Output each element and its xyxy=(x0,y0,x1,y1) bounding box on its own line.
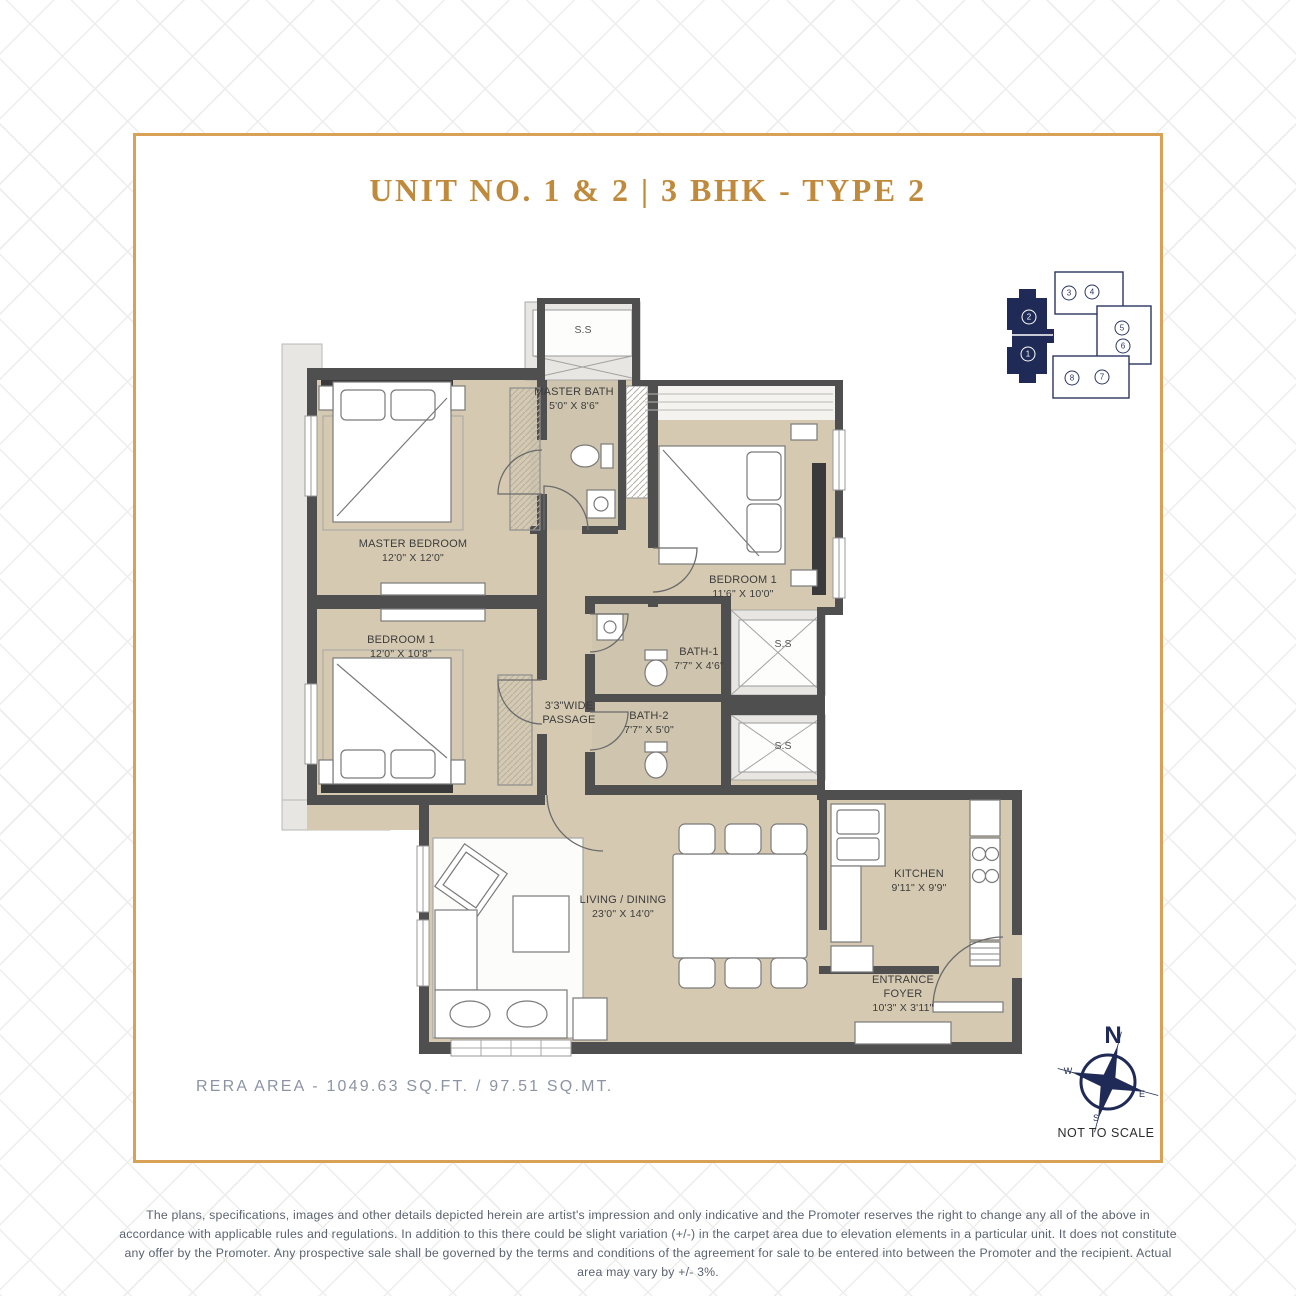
shaft-label-top: S.S xyxy=(575,324,592,336)
key-plan-unit-3: 3 xyxy=(1062,286,1077,301)
room-label-living-dining: LIVING / DINING 23'0" X 14'0" xyxy=(580,894,667,921)
compass-east-label: E xyxy=(1139,1089,1145,1099)
room-label-entrance-foyer: ENTRANCE FOYER 10'3" X 3'11" xyxy=(857,974,949,1015)
room-label-kitchen: KITCHEN 9'11" X 9'9" xyxy=(891,868,946,895)
compass-north-label: N xyxy=(1104,1022,1121,1050)
rera-area-note: RERA AREA - 1049.63 SQ.FT. / 97.51 SQ.MT… xyxy=(196,1078,613,1096)
compass-west-label: W xyxy=(1064,1066,1073,1076)
key-plan: 2 1 3 4 5 6 8 7 xyxy=(995,258,1165,408)
room-label-bath1: BATH-1 7'7" X 4'6" xyxy=(674,646,724,673)
key-plan-unit-2: 2 xyxy=(1022,310,1037,325)
key-plan-drawing xyxy=(995,258,1165,408)
shaft-label-right-top: S.S xyxy=(775,638,792,650)
shaft-label-right-bottom: S.S xyxy=(775,740,792,752)
room-label-passage: 3'3"WIDE PASSAGE xyxy=(536,700,602,728)
highlighted-units xyxy=(1007,289,1054,383)
room-label-bedroom1-left: BEDROOM 1 12'0" X 10'8" xyxy=(367,634,435,661)
disclaimer-text: The plans, specifications, images and ot… xyxy=(113,1206,1183,1282)
key-plan-unit-6: 6 xyxy=(1116,339,1131,354)
room-label-master-bath: MASTER BATH 5'0" X 8'6" xyxy=(534,386,614,413)
key-plan-unit-8: 8 xyxy=(1065,371,1080,386)
room-label-bedroom1-right: BEDROOM 1 11'6" X 10'0" xyxy=(709,574,777,601)
not-to-scale-note: NOT TO SCALE xyxy=(1057,1126,1154,1140)
room-label-master-bedroom: MASTER BEDROOM 12'0" X 12'0" xyxy=(359,538,468,565)
key-plan-unit-1: 1 xyxy=(1021,347,1036,362)
compass-rose: N W E S NOT TO SCALE xyxy=(1040,1022,1180,1147)
key-plan-unit-4: 4 xyxy=(1085,285,1100,300)
key-plan-unit-5: 5 xyxy=(1115,321,1130,336)
compass-south-label: S xyxy=(1093,1113,1099,1123)
page-title: UNIT NO. 1 & 2 | 3 BHK - TYPE 2 xyxy=(0,172,1296,209)
floor-plan-drawing xyxy=(255,298,1025,1060)
floor-plan: S.S MASTER BATH 5'0" X 8'6" MASTER BEDRO… xyxy=(255,298,1025,1060)
key-plan-unit-7: 7 xyxy=(1095,370,1110,385)
room-label-bath2: BATH-2 7'7" X 5'0" xyxy=(624,710,674,737)
